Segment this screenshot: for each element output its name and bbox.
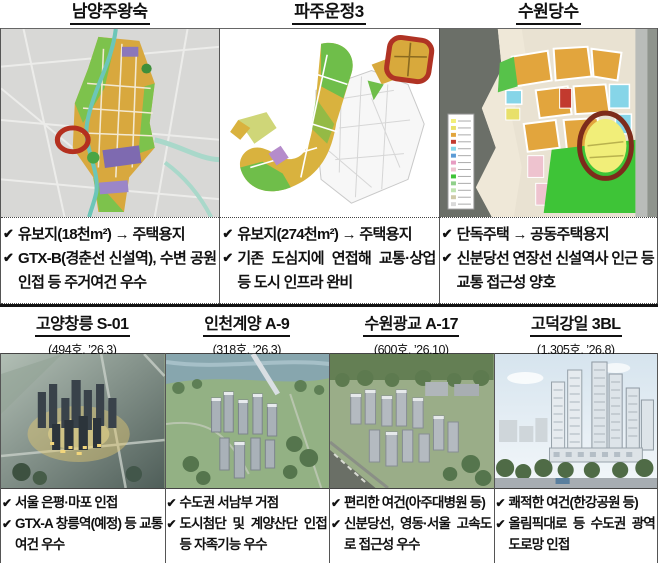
panel-title-wrap: 남양주왕숙 bbox=[0, 0, 219, 28]
check-icon: ✔ bbox=[496, 514, 509, 556]
panel-incheon-gyeyang: 인천계양 A-9 (318호, ’26.3) bbox=[165, 307, 330, 563]
landuse-map-namyangju-wangsuk bbox=[1, 28, 219, 218]
bullet-text: 신분당선, 영동·서울 고속도로 접근성 우수 bbox=[344, 514, 492, 556]
aerial-rendering-image bbox=[166, 354, 330, 488]
street-rendering-image bbox=[495, 354, 658, 488]
check-icon: ✔ bbox=[167, 514, 180, 556]
bullet-item: ✔ GTX-A 창릉역(예정) 등 교통여건 우수 bbox=[2, 514, 163, 556]
bullet-text: 편리한 여건(아주대병원 등) bbox=[344, 493, 492, 514]
bullet-text: 도시첨단 및 계양산단 인접 등 자족기능 우수 bbox=[180, 514, 328, 556]
bullet-item: ✔ 단독주택 → 공동주택용지 bbox=[442, 223, 654, 247]
check-icon: ✔ bbox=[2, 493, 15, 514]
panel-godeok-gangil: 고덕강일 3BL (1,305호, ’26.8) bbox=[494, 307, 658, 563]
landuse-map-image bbox=[220, 29, 438, 217]
check-icon: ✔ bbox=[442, 247, 457, 295]
bottom-sites-row: 고양창릉 S-01 (494호, ’26.3) bbox=[0, 307, 658, 563]
check-icon: ✔ bbox=[331, 493, 344, 514]
bullet-text: GTX-A 창릉역(예정) 등 교통여건 우수 bbox=[15, 514, 163, 556]
panel-body: ✔ 단독주택 → 공동주택용지 ✔ 신분당선 연장선 신설역사 인근 등 교통 … bbox=[439, 28, 658, 304]
bullet-item: ✔ 신분당선, 영동·서울 고속도로 접근성 우수 bbox=[331, 514, 492, 556]
panel-suwon-gwanggyo: 수원광교 A-17 (600호, ’26.10) bbox=[329, 307, 494, 563]
landuse-map-image bbox=[1, 29, 219, 217]
bullet-text: 유보지(274천m²) → 주택용지 bbox=[237, 223, 435, 247]
red-box-annotation bbox=[386, 36, 434, 83]
panel-suwon-dangsu: 수원당수 bbox=[439, 0, 658, 304]
bullet-box: ✔ 유보지(274천m²) → 주택용지 ✔ 기존 도심지에 연접해 교통·상업… bbox=[220, 218, 438, 304]
site-title-wrap: 고양창릉 S-01 (494호, ’26.3) bbox=[0, 307, 165, 353]
rendering-godeok-gangil bbox=[495, 353, 658, 489]
site-title-wrap: 수원광교 A-17 (600호, ’26.10) bbox=[329, 307, 494, 353]
site-title: 고양창릉 S-01 bbox=[35, 310, 130, 337]
panel-body: ✔ 서울 은평·마포 인접 ✔ GTX-A 창릉역(예정) 등 교통여건 우수 bbox=[0, 353, 165, 563]
bullet-item: ✔ 도시첨단 및 계양산단 인접 등 자족기능 우수 bbox=[167, 514, 328, 556]
bullet-text: 기존 도심지에 연접해 교통·상업 등 도시 인프라 완비 bbox=[237, 247, 435, 295]
landuse-map-suwon-dangsu bbox=[440, 28, 657, 218]
panel-body: ✔ 수도권 서남부 거점 ✔ 도시첨단 및 계양산단 인접 등 자족기능 우수 bbox=[165, 353, 330, 563]
bullet-item: ✔ GTX-B(경춘선 신설역), 수변 공원 인접 등 주거여건 우수 bbox=[3, 247, 216, 295]
check-icon: ✔ bbox=[2, 514, 15, 556]
panel-goyang-changneung: 고양창릉 S-01 (494호, ’26.3) bbox=[0, 307, 165, 563]
district-title: 파주운정3 bbox=[292, 2, 366, 25]
bullet-text: 단독주택 → 공동주택용지 bbox=[457, 223, 654, 247]
district-title: 남양주왕숙 bbox=[70, 2, 150, 25]
site-title: 고덕강일 3BL bbox=[530, 310, 622, 337]
landuse-map-image bbox=[440, 29, 657, 217]
top-districts-row: 남양주왕숙 bbox=[0, 0, 658, 304]
bullet-box: ✔ 편리한 여건(아주대병원 등) ✔ 신분당선, 영동·서울 고속도로 접근성… bbox=[330, 489, 494, 563]
bullet-item: ✔ 기존 도심지에 연접해 교통·상업 등 도시 인프라 완비 bbox=[222, 247, 435, 295]
panel-body: ✔ 유보지(274천m²) → 주택용지 ✔ 기존 도심지에 연접해 교통·상업… bbox=[219, 28, 438, 304]
district-title: 수원당수 bbox=[516, 2, 581, 25]
site-title-wrap: 고덕강일 3BL (1,305호, ’26.8) bbox=[494, 307, 658, 353]
panel-body: ✔ 쾌적한 여건(한강공원 등) ✔ 올림픽대로 등 수도권 광역도로망 인접 bbox=[494, 353, 658, 563]
bullet-item: ✔ 수도권 서남부 거점 bbox=[167, 493, 328, 514]
rendering-suwon-gwanggyo bbox=[330, 353, 494, 489]
panel-title-wrap: 수원당수 bbox=[439, 0, 658, 28]
panel-body: ✔ 유보지(18천m²) → 주택용지 ✔ GTX-B(경춘선 신설역), 수변… bbox=[0, 28, 219, 304]
site-title: 인천계양 A-9 bbox=[203, 310, 290, 337]
aerial-rendering-image bbox=[1, 354, 165, 488]
check-icon: ✔ bbox=[331, 514, 344, 556]
bullet-box: ✔ 서울 은평·마포 인접 ✔ GTX-A 창릉역(예정) 등 교통여건 우수 bbox=[1, 489, 165, 563]
panel-body: ✔ 편리한 여건(아주대병원 등) ✔ 신분당선, 영동·서울 고속도로 접근성… bbox=[329, 353, 494, 563]
panel-namyangju-wangsuk: 남양주왕숙 bbox=[0, 0, 219, 304]
bullet-item: ✔ 서울 은평·마포 인접 bbox=[2, 493, 163, 514]
bullet-text: 신분당선 연장선 신설역사 인근 등 교통 접근성 양호 bbox=[457, 247, 654, 295]
check-icon: ✔ bbox=[3, 223, 18, 247]
site-title-wrap: 인천계양 A-9 (318호, ’26.3) bbox=[165, 307, 330, 353]
bullet-box: ✔ 쾌적한 여건(한강공원 등) ✔ 올림픽대로 등 수도권 광역도로망 인접 bbox=[495, 489, 658, 563]
panel-paju-unjeong3: 파주운정3 bbox=[219, 0, 438, 304]
site-title: 수원광교 A-17 bbox=[363, 310, 459, 337]
bullet-box: ✔ 유보지(18천m²) → 주택용지 ✔ GTX-B(경춘선 신설역), 수변… bbox=[1, 218, 219, 304]
check-icon: ✔ bbox=[222, 223, 237, 247]
panel-title-wrap: 파주운정3 bbox=[219, 0, 438, 28]
bullet-text: 유보지(18천m²) → 주택용지 bbox=[18, 223, 216, 247]
check-icon: ✔ bbox=[496, 493, 509, 514]
rendering-incheon-gyeyang bbox=[166, 353, 330, 489]
bullet-box: ✔ 단독주택 → 공동주택용지 ✔ 신분당선 연장선 신설역사 인근 등 교통 … bbox=[440, 218, 657, 304]
landuse-map-paju-unjeong3 bbox=[220, 28, 438, 218]
bullet-text: 쾌적한 여건(한강공원 등) bbox=[509, 493, 656, 514]
bullet-item: ✔ 올림픽대로 등 수도권 광역도로망 인접 bbox=[496, 514, 656, 556]
housing-sites-infographic: 남양주왕숙 bbox=[0, 0, 658, 565]
bullet-text: GTX-B(경춘선 신설역), 수변 공원 인접 등 주거여건 우수 bbox=[18, 247, 216, 295]
bullet-item: ✔ 편리한 여건(아주대병원 등) bbox=[331, 493, 492, 514]
bullet-item: ✔ 유보지(18천m²) → 주택용지 bbox=[3, 223, 216, 247]
map-legend bbox=[448, 114, 474, 209]
bullet-text: 올림픽대로 등 수도권 광역도로망 인접 bbox=[509, 514, 656, 556]
check-icon: ✔ bbox=[222, 247, 237, 295]
check-icon: ✔ bbox=[442, 223, 457, 247]
rendering-goyang-changneung bbox=[1, 353, 165, 489]
check-icon: ✔ bbox=[167, 493, 180, 514]
bullet-item: ✔ 유보지(274천m²) → 주택용지 bbox=[222, 223, 435, 247]
bullet-box: ✔ 수도권 서남부 거점 ✔ 도시첨단 및 계양산단 인접 등 자족기능 우수 bbox=[166, 489, 330, 563]
check-icon: ✔ bbox=[3, 247, 18, 295]
bullet-item: ✔ 쾌적한 여건(한강공원 등) bbox=[496, 493, 656, 514]
bullet-text: 수도권 서남부 거점 bbox=[180, 493, 328, 514]
bullet-text: 서울 은평·마포 인접 bbox=[15, 493, 163, 514]
bullet-item: ✔ 신분당선 연장선 신설역사 인근 등 교통 접근성 양호 bbox=[442, 247, 654, 295]
aerial-rendering-image bbox=[330, 354, 494, 488]
